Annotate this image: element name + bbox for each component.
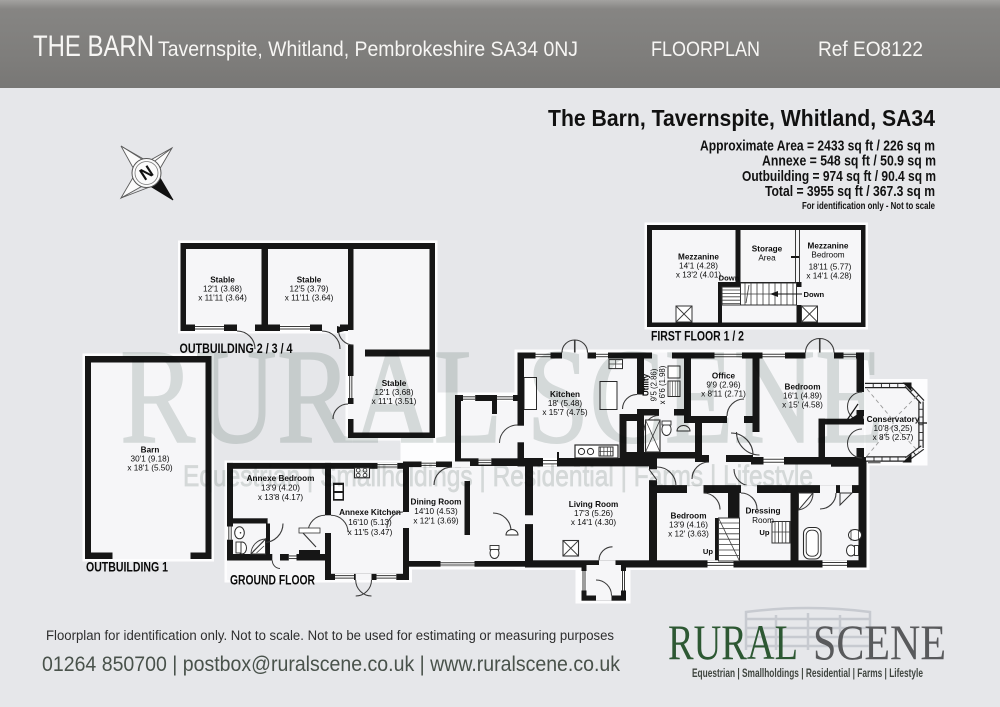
svg-text:Equestrian | Smallholdings | R: Equestrian | Smallholdings | Residential… <box>183 460 813 493</box>
svg-text:RURAL SCENE: RURAL SCENE <box>120 322 884 472</box>
